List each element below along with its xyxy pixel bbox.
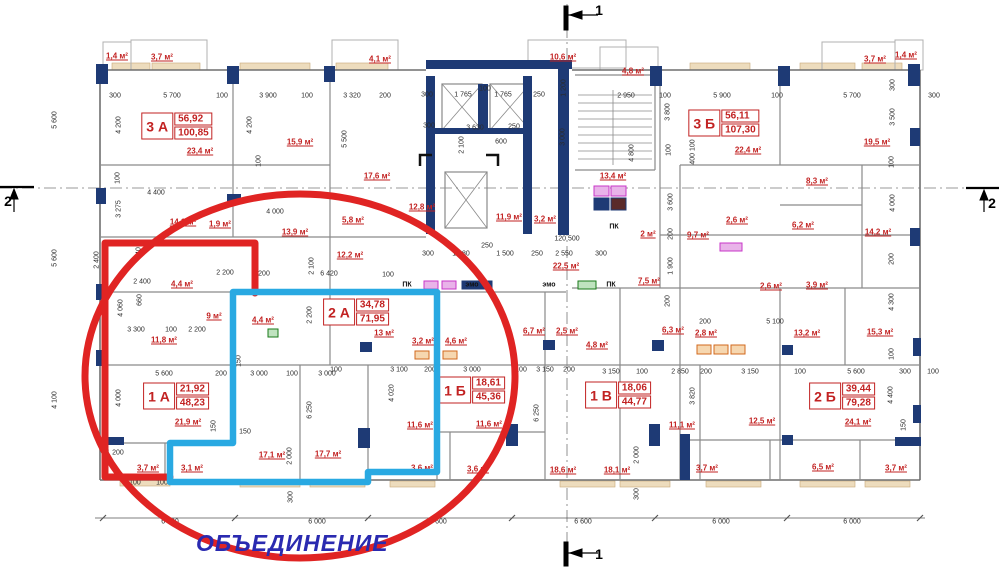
dimension-label: 4 100 [52, 391, 59, 409]
dimension-label: 250 [533, 92, 545, 99]
dimension-label: 1 765 [494, 92, 512, 99]
room-area-label: 6,3 м² [662, 326, 684, 335]
dimension-label: 3 300 [127, 327, 145, 334]
service-label: эмо [542, 282, 555, 289]
room-area-label: 22,4 м² [735, 146, 761, 155]
apartment-badge: 2 А34,7871,95 [323, 299, 389, 326]
dimension-label: 4 060 [118, 299, 125, 317]
dimension-label: 3 000 [463, 367, 481, 374]
merge-annotation-label: ОБЪЕДИНЕНИЕ [196, 530, 389, 557]
dimension-label: 200 [665, 295, 672, 307]
room-area-label: 17,7 м² [315, 450, 341, 459]
dimension-label: 100 [794, 369, 806, 376]
room-area-label: 3,7 м² [864, 55, 886, 64]
dimension-label: 3 500 [890, 108, 897, 126]
dimension-label: 2 200 [307, 306, 314, 324]
living-area: 21,92 [176, 383, 209, 396]
dimension-label: 200 [424, 367, 436, 374]
room-area-label: 15,3 м² [867, 328, 893, 337]
room-area-label: 3,9 м² [806, 281, 828, 290]
dimension-label: 4 400 [147, 190, 165, 197]
total-area: 45,36 [472, 391, 505, 404]
dimension-label: 100 [889, 348, 896, 360]
dimension-label: 4 000 [116, 389, 123, 407]
room-area-label: 18,1 м² [604, 466, 630, 475]
section-number: 2 [988, 195, 996, 211]
dimension-label: 5 500 [342, 130, 349, 148]
room-area-label: 12,5 м² [749, 417, 775, 426]
dimension-label: 300 [899, 369, 911, 376]
service-label: ПК [609, 224, 618, 231]
apartment-badge: 1 В18,0644,77 [585, 382, 651, 409]
dimension-label: 5 600 [155, 371, 173, 378]
dimension-label: 2 100 [459, 136, 466, 154]
total-area: 107,30 [721, 124, 760, 137]
dimension-label: 150 [239, 429, 251, 436]
room-area-label: 11,9 м² [496, 213, 522, 222]
dimension-label: 3 150 [536, 367, 554, 374]
room-area-label: 3,1 м² [181, 464, 203, 473]
apartment-areas: 56,11107,30 [721, 110, 760, 137]
room-area-label: 11,1 м² [669, 421, 695, 430]
room-area-label: 1,4 м² [895, 51, 917, 60]
living-area: 56,11 [721, 110, 760, 123]
room-area-label: 13,4 м² [600, 172, 626, 181]
room-area-label: 11,6 м² [476, 420, 502, 429]
room-area-label: 6,2 м² [792, 221, 814, 230]
total-area: 44,77 [618, 396, 651, 409]
room-area-label: 11,6 м² [407, 421, 433, 430]
apartment-unit: 2 Б [809, 383, 841, 410]
room-area-label: 2,8 м² [695, 329, 717, 338]
dimension-label: 6 600 [574, 519, 592, 526]
dimension-label: 100 [479, 86, 491, 93]
dimension-label: 400 100 [690, 139, 697, 164]
dimension-label: 640 [136, 247, 143, 259]
total-area: 48,23 [176, 397, 209, 410]
room-area-label: 3,6 м² [411, 464, 433, 473]
dimension-label: 3 800 [665, 103, 672, 121]
dimension-label: 5 900 [713, 93, 731, 100]
room-area-label: 23,4 м² [187, 147, 213, 156]
labels-layer: 1,4 м²3,7 м²4,1 м²10,6 м²4,8 м²3,7 м²1,4… [0, 0, 999, 574]
dimension-label: 4 200 [116, 116, 123, 134]
dimension-label: 200 [379, 93, 391, 100]
living-area: 34,78 [356, 299, 389, 312]
apartment-unit: 3 А [141, 113, 173, 140]
dimension-label: 150 [236, 355, 243, 367]
service-label: эмо [465, 282, 478, 289]
dimension-label: 1 500 [496, 251, 514, 258]
floor-plan-canvas: 1,4 м²3,7 м²4,1 м²10,6 м²4,8 м²3,7 м²1,4… [0, 0, 999, 574]
dimension-label: 2 550 [555, 251, 573, 258]
apartment-unit: 1 В [585, 382, 617, 409]
room-area-label: 3,2 м² [534, 215, 556, 224]
dimension-label: 6 000 [712, 519, 730, 526]
dimension-label: 3 000 [250, 371, 268, 378]
dimension-label: 300 [890, 79, 897, 91]
dimension-label: 4 000 [890, 194, 897, 212]
dimension-label: 2 100 [309, 257, 316, 275]
dimension-label: 3 630 [466, 125, 484, 132]
room-area-label: 4,4 м² [252, 316, 274, 325]
apartment-areas: 39,4479,28 [842, 383, 875, 410]
dimension-label: 1 765 [454, 92, 472, 99]
section-number: 1 [595, 2, 603, 18]
dimension-label: 3 000 [560, 128, 567, 146]
room-area-label: 2,6 м² [760, 282, 782, 291]
apartment-areas: 34,7871,95 [356, 299, 389, 326]
dimension-label: 6 000 [161, 519, 179, 526]
room-area-label: 4,6 м² [445, 337, 467, 346]
room-area-label: 4,4 м² [171, 280, 193, 289]
room-area-label: 6,5 м² [812, 463, 834, 472]
section-number: 2 [4, 193, 12, 209]
dimension-label: 300 [634, 488, 641, 500]
room-area-label: 12,8 м² [409, 203, 435, 212]
dimension-label: 5 700 [163, 93, 181, 100]
living-area: 39,44 [842, 383, 875, 396]
dimension-label: 200 [215, 371, 227, 378]
dimension-label: 200 [563, 367, 575, 374]
dimension-label: 2 850 [671, 369, 689, 376]
dimension-label: 300 [423, 123, 435, 130]
dimension-label: 100 [382, 272, 394, 279]
room-area-label: 7,5 м² [638, 277, 660, 286]
dimension-label: 600 [495, 139, 507, 146]
dimension-label: 2 000 [287, 447, 294, 465]
dimension-label: 300 [109, 93, 121, 100]
apartment-badge: 1 Б18,6145,36 [439, 377, 505, 404]
dimension-label: 300 [288, 491, 295, 503]
dimension-label: 200 [700, 369, 712, 376]
apartment-areas: 18,6145,36 [472, 377, 505, 404]
dimension-label: 120 500 [554, 236, 579, 243]
dimension-label: 3 900 [259, 93, 277, 100]
dimension-label: 2 000 [634, 446, 641, 464]
dimension-label: 1 200 [561, 79, 568, 97]
apartment-badge: 3 Б56,11107,30 [688, 110, 759, 137]
dimension-label: 300 [595, 251, 607, 258]
dimension-label: 100 [659, 93, 671, 100]
room-area-label: 14,1 м² [170, 218, 196, 227]
dimension-label: 100 [330, 367, 342, 374]
room-area-label: 2,6 м² [726, 216, 748, 225]
room-area-label: 2 м² [640, 230, 655, 239]
room-area-label: 24,1 м² [845, 418, 871, 427]
room-area-label: 8,3 м² [806, 177, 828, 186]
dimension-label: 100 [301, 93, 313, 100]
dimension-label: 100 [889, 156, 896, 168]
room-area-label: 4,8 м² [622, 67, 644, 76]
dimension-label: 6 250 [534, 404, 541, 422]
dimension-label: 3 320 [343, 93, 361, 100]
room-area-label: 5,8 м² [342, 216, 364, 225]
dimension-label: 6 250 [307, 401, 314, 419]
service-label: ПК [606, 282, 615, 289]
dimension-label: 5 600 [847, 369, 865, 376]
dimension-label: 300 [421, 92, 433, 99]
room-area-label: 9,7 м² [687, 231, 709, 240]
dimension-label: 3 600 [668, 193, 675, 211]
dimension-label: 4 200 [247, 116, 254, 134]
dimension-label: 100 [156, 480, 168, 487]
apartment-badge: 2 Б39,4479,28 [809, 383, 875, 410]
dimension-label: 1 880 [452, 251, 470, 258]
apartment-unit: 1 А [143, 383, 175, 410]
dimension-label: 6 420 [320, 271, 338, 278]
dimension-label: 100 [286, 371, 298, 378]
living-area: 18,06 [618, 382, 651, 395]
room-area-label: 14,2 м² [865, 228, 891, 237]
dimension-label: 2 400 [133, 279, 151, 286]
dimension-label: 1 200 [106, 450, 124, 457]
dimension-label: 200 [889, 253, 896, 265]
dimension-label: 4 300 [889, 293, 896, 311]
total-area: 71,95 [356, 313, 389, 326]
dimension-label: 250 [508, 124, 520, 131]
room-area-label: 3,7 м² [696, 464, 718, 473]
room-area-label: 9 м² [206, 312, 221, 321]
dimension-label: 100 [165, 327, 177, 334]
dimension-label: 100 [515, 367, 527, 374]
apartment-areas: 21,9248,23 [176, 383, 209, 410]
apartment-badge: 3 А56,92100,85 [141, 113, 212, 140]
room-area-label: 3,6 м² [467, 465, 489, 474]
room-area-label: 1,4 м² [106, 52, 128, 61]
living-area: 56,92 [174, 113, 213, 126]
dimension-label: 6 000 [843, 519, 861, 526]
dimension-label: 4 400 [888, 386, 895, 404]
room-area-label: 18,6 м² [550, 466, 576, 475]
apartment-areas: 18,0644,77 [618, 382, 651, 409]
dimension-label: 100 [256, 155, 263, 167]
apartment-areas: 56,92100,85 [174, 113, 213, 140]
apartment-unit: 3 Б [688, 110, 720, 137]
dimension-label: 100 [666, 144, 673, 156]
dimension-label: 4 800 [629, 144, 636, 162]
dimension-label: 660 [137, 294, 144, 306]
total-area: 100,85 [174, 127, 213, 140]
dimension-label: 150 [211, 420, 218, 432]
apartment-badge: 1 А21,9248,23 [143, 383, 209, 410]
room-area-label: 3,7 м² [885, 464, 907, 473]
room-area-label: 4,8 м² [586, 341, 608, 350]
dimension-label: 5 100 [766, 319, 784, 326]
dimension-label: 3 150 [602, 369, 620, 376]
dimension-label: 100 [771, 93, 783, 100]
room-area-label: 22,5 м² [553, 262, 579, 271]
room-area-label: 17,6 м² [364, 172, 390, 181]
room-area-label: 3,2 м² [412, 337, 434, 346]
dimension-label: 200 [699, 319, 711, 326]
service-label: ПК [402, 282, 411, 289]
room-area-label: 19,5 м² [864, 138, 890, 147]
room-area-label: 15,9 м² [287, 138, 313, 147]
apartment-unit: 2 А [323, 299, 355, 326]
dimension-label: 4 020 [389, 384, 396, 402]
dimension-label: 1 900 [668, 257, 675, 275]
dimension-label: 3 100 [123, 480, 141, 487]
dimension-label: 3 275 [116, 200, 123, 218]
room-area-label: 13,9 м² [282, 228, 308, 237]
dimension-label: 200 [668, 228, 675, 240]
room-area-label: 10,6 м² [550, 53, 576, 62]
room-area-label: 2,5 м² [556, 327, 578, 336]
room-area-label: 11,8 м² [151, 336, 177, 345]
room-area-label: 3,7 м² [151, 53, 173, 62]
room-area-label: 4,1 м² [369, 55, 391, 64]
apartment-unit: 1 Б [439, 377, 471, 404]
room-area-label: 6,7 м² [523, 327, 545, 336]
room-area-label: 12,2 м² [337, 251, 363, 260]
section-number: 1 [595, 546, 603, 562]
dimension-label: 3 100 [390, 367, 408, 374]
dimension-label: 5 700 [843, 93, 861, 100]
dimension-label: 5 600 [52, 249, 59, 267]
room-area-label: 3,7 м² [137, 464, 159, 473]
dimension-label: 250 [531, 251, 543, 258]
total-area: 79,28 [842, 397, 875, 410]
dimension-label: 2 200 [188, 327, 206, 334]
room-area-label: 13,2 м² [794, 329, 820, 338]
room-area-label: 17,1 м² [259, 451, 285, 460]
dimension-label: 100 [115, 172, 122, 184]
dimension-label: 3 150 [741, 369, 759, 376]
dimension-label: 3 820 [690, 387, 697, 405]
dimension-label: 250 [481, 243, 493, 250]
dimension-label: 6 600 [429, 519, 447, 526]
dimension-label: 100 [216, 93, 228, 100]
dimension-label: 2 400 [94, 251, 101, 269]
room-area-label: 21,9 м² [175, 418, 201, 427]
dimension-label: 2 200 [216, 270, 234, 277]
room-area-label: 13 м² [374, 329, 394, 338]
dimension-label: 300 [928, 93, 940, 100]
dimension-label: 150 [901, 419, 908, 431]
dimension-label: 4 000 [266, 209, 284, 216]
dimension-label: 100 [636, 369, 648, 376]
dimension-label: 200 [258, 271, 270, 278]
dimension-label: 300 [422, 251, 434, 258]
dimension-label: 100 [927, 369, 939, 376]
room-area-label: 1,9 м² [209, 220, 231, 229]
living-area: 18,61 [472, 377, 505, 390]
dimension-label: 5 600 [52, 111, 59, 129]
dimension-label: 6 000 [308, 519, 326, 526]
dimension-label: 2 950 [617, 93, 635, 100]
